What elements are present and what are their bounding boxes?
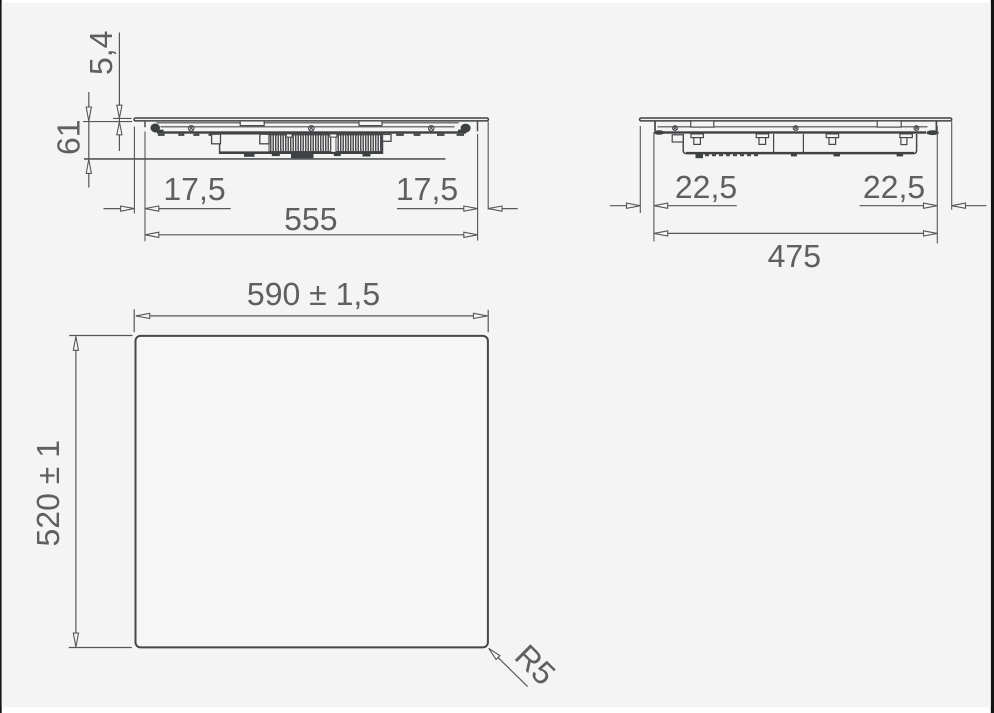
- svg-text:17,5: 17,5: [396, 171, 458, 207]
- svg-text:22,5: 22,5: [675, 169, 737, 205]
- svg-text:520 ± 1: 520 ± 1: [30, 440, 66, 547]
- svg-text:475: 475: [768, 238, 821, 274]
- svg-text:590 ± 1,5: 590 ± 1,5: [247, 276, 380, 312]
- svg-text:5,4: 5,4: [83, 31, 119, 75]
- svg-text:555: 555: [284, 201, 337, 237]
- svg-text:17,5: 17,5: [163, 171, 225, 207]
- svg-text:22,5: 22,5: [863, 169, 925, 205]
- svg-text:61: 61: [51, 119, 87, 155]
